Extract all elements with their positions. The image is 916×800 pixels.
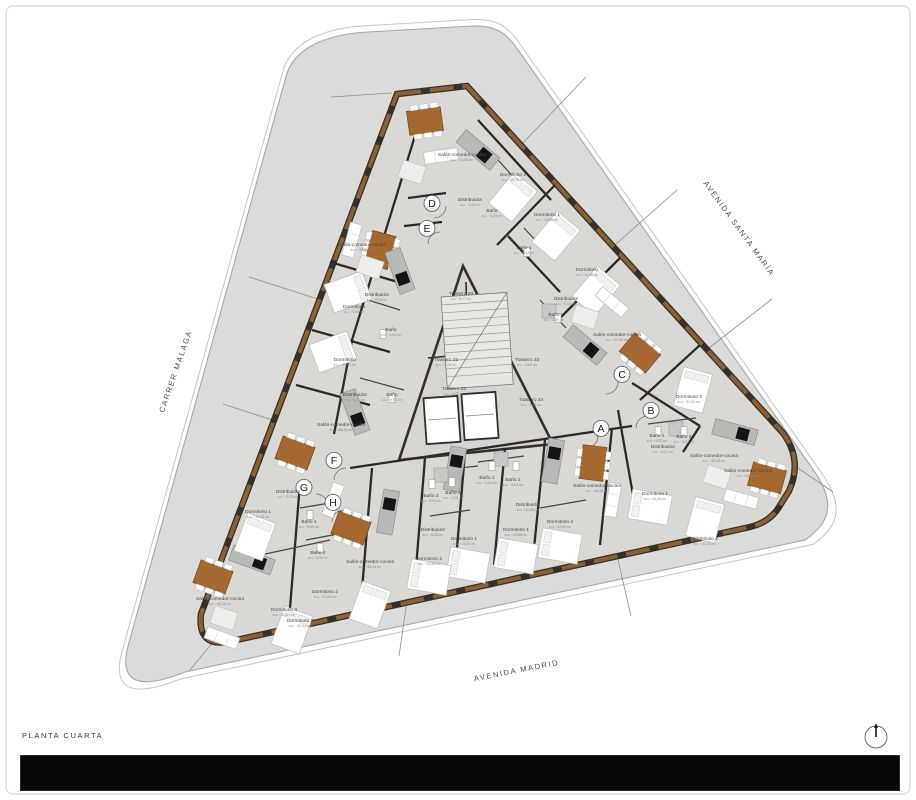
toilet — [489, 462, 495, 471]
room-label: Distribuidors.u. ~6,28 m² — [421, 527, 446, 537]
unit-entrance-letter: D — [428, 198, 436, 210]
staircase — [441, 292, 513, 388]
room-label: Distribuidors.u. ~4,21 m² — [343, 392, 368, 402]
room-label: Trastero 31s.u. ~4,54 m² — [434, 357, 459, 367]
north-compass-icon — [865, 723, 887, 748]
room-label: Dormitorio 2s.u. ~10,75 m² — [500, 172, 526, 182]
room-label: Dormitorio 1s.u. ~11,56 m² — [245, 509, 271, 519]
floor-title: PLANTA CUARTA — [22, 731, 103, 740]
toilet — [513, 462, 519, 471]
room-label: Dormitorio 2s.u. ~11,02 m² — [676, 394, 702, 404]
room-label: Dormitorio 3s.u. ~10,61 m² — [271, 607, 297, 617]
room-label: Dormitorio 3s.u. ~10,34 m² — [287, 618, 313, 628]
floor-plan-sheet: Salón-comedor-cocinas.u. ~44,85 m²Dormit… — [0, 0, 916, 800]
toilet — [307, 511, 313, 520]
room-label: Dormitorio 2s.u. ~12,56 m² — [416, 556, 442, 566]
room-label: Distribuidors.u. ~5,08 m² — [554, 296, 579, 306]
room-label: Distribuidors.u. ~9,21 m² — [276, 489, 301, 499]
unit-entrance-letter: E — [423, 223, 430, 235]
street-label: AVENIDA SANTA MARÍA — [701, 179, 776, 278]
room-label: Dormitorio 1s.u. ~12,86 m² — [534, 212, 560, 222]
room-label: Distribuidors.u. ~6,06 m² — [365, 292, 390, 302]
unit-entrance-letter: B — [647, 405, 654, 417]
toilet — [449, 478, 455, 487]
dining-table — [574, 444, 612, 482]
unit-entrance-letter: C — [618, 369, 626, 381]
toilet — [429, 480, 435, 489]
floor-plan-drawing: Salón-comedor-cocinas.u. ~44,85 m²Dormit… — [0, 0, 916, 800]
shower — [434, 468, 448, 482]
room-label: Distribuidors.u. ~10,08 m² — [516, 502, 541, 512]
unit-entrance-letter: F — [331, 455, 337, 467]
room-label: Trastero 34s.u. ~4,16 m² — [519, 397, 544, 407]
footer-redacted-bar — [20, 755, 900, 791]
dining-table — [406, 102, 444, 140]
street-label: CARRER MALAGA — [157, 329, 194, 414]
room-label: Dormitorios.u. ~9,56 m² — [343, 304, 365, 314]
room-label: Trastero 30s.u. ~5,77 m² — [449, 291, 474, 301]
bed — [494, 538, 539, 574]
bed — [538, 528, 583, 564]
unit-entrance-letter: G — [300, 482, 308, 494]
room-label: Dormitorio 1s.u. ~12,24 m² — [692, 536, 718, 546]
room-label: Dormitorios.u. ~10,61 m² — [334, 357, 357, 367]
room-label: Dormitorio 2s.u. ~11,06 m² — [312, 589, 338, 599]
shower — [494, 452, 508, 466]
unit-entrance-letter: A — [597, 423, 604, 435]
street-label: AVENIDA MADRID — [473, 658, 560, 683]
room-label: Dormitorio 1s.u. ~13,66 m² — [451, 536, 477, 546]
room-label: Distribuidors.u. ~7,03 m² — [458, 197, 483, 207]
room-label: Dormitorio 2s.u. ~12,59 m² — [547, 519, 573, 529]
room-label: Dormitorio 1s.u. ~13,26 m² — [642, 491, 668, 501]
unit-entrance-letter: H — [329, 497, 337, 509]
room-label: Distribuidors.u. ~6,21 m² — [651, 444, 676, 454]
room-label: Dormitorio 1s.u. ~13,68 m² — [503, 527, 529, 537]
room-label: Trastero 32s.u. ~4,80 m² — [442, 386, 467, 396]
room-label: Trastero 33s.u. ~4,63 m² — [515, 357, 540, 367]
bed — [446, 547, 491, 583]
room-label: Dormitorios.u. ~11,48 m² — [576, 267, 599, 277]
